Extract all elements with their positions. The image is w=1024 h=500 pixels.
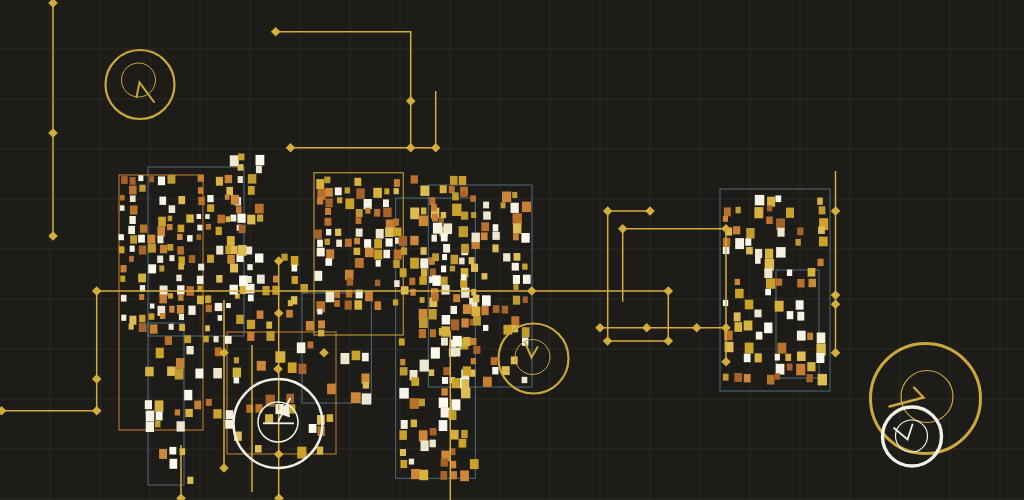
chip-square bbox=[521, 233, 529, 243]
chip-square bbox=[400, 449, 406, 456]
chip-square bbox=[523, 296, 528, 303]
chip-square bbox=[451, 430, 459, 440]
chip-square bbox=[218, 315, 223, 321]
chip-square bbox=[198, 187, 203, 194]
chip-square bbox=[482, 295, 491, 306]
chip-square bbox=[177, 246, 184, 255]
chip-square bbox=[765, 289, 771, 295]
chip-square bbox=[473, 316, 481, 326]
chip-square bbox=[130, 246, 135, 252]
chip-square bbox=[247, 332, 254, 341]
chip-square bbox=[184, 390, 192, 400]
chip-square bbox=[430, 329, 436, 337]
chip-square bbox=[205, 325, 210, 331]
chip-square bbox=[723, 374, 729, 381]
chip-square bbox=[785, 354, 791, 361]
chip-square bbox=[297, 447, 306, 459]
chip-square bbox=[185, 409, 193, 417]
chip-square bbox=[176, 358, 184, 369]
chip-square bbox=[365, 208, 370, 214]
chip-square bbox=[492, 232, 499, 240]
chip-square bbox=[130, 177, 136, 185]
chip-square bbox=[393, 299, 398, 305]
chip-square bbox=[807, 362, 815, 371]
chip-square bbox=[491, 357, 498, 365]
chip-square bbox=[409, 278, 415, 285]
chip-square bbox=[337, 197, 342, 203]
chip-square bbox=[273, 276, 279, 283]
chip-square bbox=[440, 185, 447, 193]
chip-square bbox=[429, 309, 437, 320]
chip-square bbox=[121, 315, 126, 321]
chip-square bbox=[374, 209, 380, 217]
chip-square bbox=[148, 264, 156, 273]
chip-square bbox=[430, 440, 436, 448]
chip-square bbox=[198, 175, 204, 182]
chip-square bbox=[239, 225, 246, 233]
chip-square bbox=[347, 278, 354, 285]
chip-square bbox=[176, 275, 181, 282]
chip-square bbox=[205, 214, 210, 219]
chip-square bbox=[198, 264, 204, 271]
chip-square bbox=[324, 177, 330, 184]
chip-square bbox=[129, 324, 134, 330]
chip-square bbox=[363, 382, 369, 389]
chip-square bbox=[441, 326, 450, 336]
chip-square bbox=[146, 411, 155, 422]
chip-square bbox=[238, 154, 244, 161]
chip-square bbox=[187, 477, 193, 484]
chip-square bbox=[345, 301, 352, 310]
chip-square bbox=[452, 192, 459, 200]
chip-square bbox=[194, 401, 201, 410]
chip-square bbox=[206, 305, 212, 313]
chip-square bbox=[399, 430, 407, 440]
chip-square bbox=[376, 260, 381, 267]
chip-square bbox=[451, 399, 460, 410]
art-canvas bbox=[0, 0, 1024, 500]
chip-square bbox=[139, 315, 145, 323]
chip-square bbox=[797, 228, 803, 236]
chip-square bbox=[442, 285, 450, 295]
chip-square bbox=[375, 280, 380, 287]
chip-square bbox=[400, 460, 407, 468]
chip-square bbox=[265, 414, 273, 424]
chip-square bbox=[376, 229, 384, 239]
chip-square bbox=[471, 306, 480, 316]
chip-square bbox=[473, 295, 480, 303]
chip-square bbox=[167, 367, 176, 376]
chip-square bbox=[315, 271, 323, 281]
chip-square bbox=[421, 247, 427, 255]
chip-square bbox=[511, 203, 519, 213]
chip-square bbox=[157, 236, 163, 244]
chip-square bbox=[155, 421, 161, 428]
chip-square bbox=[345, 187, 350, 193]
chip-square bbox=[238, 164, 244, 171]
chip-square bbox=[159, 265, 164, 271]
chip-square bbox=[394, 280, 399, 287]
chip-square bbox=[419, 470, 428, 481]
chip-square bbox=[149, 313, 155, 320]
chip-square bbox=[203, 336, 209, 343]
chip-square bbox=[213, 409, 221, 418]
chip-square bbox=[178, 196, 185, 204]
chip-square bbox=[327, 414, 334, 422]
chip-square bbox=[275, 351, 285, 362]
chip-square bbox=[394, 188, 399, 194]
chip-square bbox=[150, 324, 158, 333]
chip-square bbox=[513, 233, 519, 240]
chip-square bbox=[452, 378, 460, 388]
chip-square bbox=[170, 459, 178, 469]
chip-square bbox=[766, 217, 773, 225]
chip-square bbox=[374, 239, 382, 248]
chip-square bbox=[255, 445, 262, 453]
chip-square bbox=[336, 240, 342, 247]
chip-square bbox=[471, 358, 476, 364]
chip-square bbox=[400, 367, 408, 375]
chip-square bbox=[345, 239, 352, 247]
chip-square bbox=[470, 459, 479, 469]
chip-square bbox=[356, 218, 362, 224]
chip-square bbox=[745, 238, 751, 246]
chip-square bbox=[452, 204, 461, 216]
chip-square bbox=[178, 263, 184, 269]
chip-square bbox=[326, 249, 334, 259]
chip-square bbox=[471, 264, 478, 272]
chip-square bbox=[238, 245, 247, 256]
chip-square bbox=[442, 254, 447, 260]
chip-square bbox=[450, 461, 456, 469]
chip-square bbox=[461, 430, 468, 438]
chip-square bbox=[247, 215, 255, 225]
chip-square bbox=[483, 211, 491, 219]
chip-square bbox=[158, 176, 165, 185]
chip-square bbox=[216, 227, 222, 235]
chip-square bbox=[431, 347, 440, 358]
chip-square bbox=[187, 235, 193, 242]
chip-square bbox=[461, 244, 469, 254]
chip-square bbox=[230, 285, 238, 295]
chip-square bbox=[318, 330, 324, 337]
chip-square bbox=[797, 312, 804, 321]
chip-square bbox=[335, 229, 341, 236]
chip-square bbox=[236, 206, 242, 213]
chip-square bbox=[775, 354, 780, 361]
chip-square bbox=[451, 319, 459, 330]
chip-square bbox=[160, 245, 167, 253]
chip-square bbox=[158, 217, 166, 227]
chip-square bbox=[522, 377, 528, 383]
chip-square bbox=[257, 215, 263, 222]
chip-square bbox=[226, 187, 233, 196]
chip-square bbox=[451, 471, 457, 479]
chip-square bbox=[745, 343, 754, 354]
chip-square bbox=[441, 388, 447, 395]
chip-square bbox=[159, 197, 166, 205]
chip-square bbox=[308, 341, 314, 348]
chip-square bbox=[299, 364, 307, 374]
chip-square bbox=[383, 208, 392, 218]
chip-square bbox=[493, 224, 499, 231]
chip-square bbox=[157, 227, 165, 237]
chip-square bbox=[744, 354, 751, 363]
chip-square bbox=[441, 459, 448, 467]
chip-square bbox=[399, 338, 405, 345]
chip-square bbox=[817, 198, 823, 205]
chip-square bbox=[383, 199, 389, 207]
chip-square bbox=[443, 244, 450, 253]
chip-square bbox=[443, 223, 452, 234]
chip-square bbox=[306, 321, 314, 331]
chip-square bbox=[776, 279, 782, 286]
chip-square bbox=[327, 384, 336, 395]
chip-square bbox=[139, 323, 147, 332]
chip-square bbox=[461, 288, 469, 298]
chip-square bbox=[809, 279, 817, 288]
chip-square bbox=[148, 235, 156, 244]
chip-square bbox=[169, 447, 176, 455]
chip-square bbox=[411, 469, 420, 479]
chip-square bbox=[128, 226, 135, 234]
chip-square bbox=[165, 336, 172, 345]
chip-square bbox=[440, 471, 447, 480]
chip-square bbox=[463, 337, 470, 346]
chip-square bbox=[777, 228, 784, 237]
chip-square bbox=[819, 206, 826, 214]
chip-square bbox=[734, 373, 742, 382]
chip-square bbox=[155, 400, 164, 411]
chip-square bbox=[255, 254, 263, 263]
chip-square bbox=[121, 176, 128, 184]
chip-square bbox=[365, 291, 373, 301]
chip-square bbox=[315, 230, 322, 239]
chip-square bbox=[419, 399, 425, 407]
chip-square bbox=[129, 216, 135, 224]
chip-square bbox=[356, 188, 365, 198]
chip-square bbox=[215, 303, 223, 311]
chip-square bbox=[178, 225, 185, 233]
chip-square bbox=[787, 364, 793, 371]
chip-square bbox=[419, 430, 428, 441]
chip-square bbox=[432, 253, 439, 261]
chip-square bbox=[787, 270, 792, 277]
chip-square bbox=[384, 188, 389, 194]
chip-square bbox=[325, 198, 332, 207]
chip-square bbox=[352, 351, 361, 361]
chip-square bbox=[735, 279, 740, 285]
chip-square bbox=[373, 188, 382, 198]
chip-square bbox=[334, 300, 340, 307]
chip-square bbox=[356, 229, 363, 237]
chip-square bbox=[256, 155, 265, 165]
chip-square bbox=[247, 264, 252, 270]
chip-square bbox=[139, 294, 144, 300]
chip-square bbox=[471, 338, 477, 345]
chip-square bbox=[297, 342, 306, 353]
chip-square bbox=[493, 305, 500, 313]
chip-square bbox=[459, 258, 465, 265]
chip-square bbox=[160, 313, 165, 319]
chip-square bbox=[233, 368, 241, 378]
chip-square bbox=[439, 398, 448, 408]
chip-square bbox=[513, 284, 518, 290]
generative-artwork bbox=[0, 0, 1024, 500]
chip-square bbox=[317, 240, 323, 247]
chip-square bbox=[292, 276, 298, 284]
chip-square bbox=[207, 204, 214, 212]
chip-square bbox=[442, 315, 450, 325]
chip-square bbox=[400, 268, 407, 277]
chip-square bbox=[450, 176, 458, 185]
chip-square bbox=[459, 226, 468, 237]
chip-square bbox=[168, 293, 173, 298]
chip-square bbox=[512, 263, 519, 271]
chip-square bbox=[430, 428, 437, 436]
chip-square bbox=[733, 226, 740, 234]
chip-square bbox=[775, 301, 784, 312]
chip-square bbox=[175, 369, 184, 380]
chip-square bbox=[421, 208, 426, 215]
chip-square bbox=[129, 186, 137, 195]
chip-square bbox=[309, 424, 317, 433]
chip-square bbox=[469, 257, 475, 264]
chip-square bbox=[157, 256, 163, 263]
chip-square bbox=[492, 367, 498, 374]
chip-square bbox=[433, 223, 442, 234]
chip-square bbox=[248, 186, 255, 195]
chip-square bbox=[354, 178, 361, 186]
chip-square bbox=[441, 408, 450, 418]
chip-square bbox=[169, 324, 174, 330]
chip-square bbox=[226, 216, 231, 222]
chip-square bbox=[401, 420, 408, 429]
chip-square bbox=[514, 253, 521, 261]
chip-square bbox=[197, 214, 202, 219]
chip-square bbox=[409, 459, 414, 465]
chip-square bbox=[325, 258, 332, 266]
chip-square bbox=[410, 208, 419, 220]
chip-square bbox=[230, 264, 238, 273]
chip-square bbox=[130, 206, 138, 215]
chip-square bbox=[441, 338, 448, 346]
chip-square bbox=[441, 212, 447, 218]
chip-square bbox=[786, 208, 794, 218]
chip-square bbox=[383, 250, 390, 258]
chip-square bbox=[266, 331, 274, 341]
chip-square bbox=[386, 238, 393, 246]
chip-square bbox=[362, 353, 369, 362]
chip-square bbox=[796, 364, 805, 376]
chip-square bbox=[230, 215, 236, 222]
chip-square bbox=[430, 268, 436, 276]
chip-square bbox=[472, 233, 480, 243]
chip-square bbox=[818, 226, 825, 234]
chip-square bbox=[410, 289, 415, 296]
chip-square bbox=[326, 291, 335, 302]
chip-square bbox=[177, 305, 184, 314]
chip-square bbox=[120, 205, 125, 211]
chip-square bbox=[216, 275, 222, 283]
chip-square bbox=[471, 212, 476, 218]
chip-square bbox=[461, 318, 468, 327]
chip-square bbox=[237, 214, 245, 223]
chip-square bbox=[179, 314, 184, 320]
chip-square bbox=[145, 367, 154, 377]
chip-square bbox=[167, 244, 173, 251]
chip-square bbox=[470, 195, 476, 202]
chip-square bbox=[775, 195, 781, 202]
chip-square bbox=[145, 400, 152, 409]
chip-square bbox=[787, 311, 794, 319]
chip-square bbox=[234, 357, 239, 363]
chip-square bbox=[734, 312, 741, 321]
chip-square bbox=[325, 239, 330, 245]
chip-square bbox=[292, 265, 298, 272]
chip-square bbox=[375, 301, 382, 310]
chip-square bbox=[410, 398, 419, 409]
chip-square bbox=[744, 374, 751, 382]
chip-square bbox=[399, 388, 409, 399]
chip-square bbox=[214, 336, 219, 342]
chip-square bbox=[354, 238, 360, 245]
chip-square bbox=[231, 246, 237, 254]
chip-square bbox=[421, 269, 427, 277]
chip-square bbox=[453, 336, 462, 347]
chip-square bbox=[523, 275, 531, 284]
chip-square bbox=[146, 422, 154, 433]
chip-square bbox=[286, 310, 293, 318]
chip-square bbox=[288, 362, 297, 373]
chip-square bbox=[184, 335, 191, 343]
chip-square bbox=[432, 294, 439, 301]
chip-square bbox=[257, 361, 266, 371]
chip-square bbox=[177, 234, 183, 240]
chip-square bbox=[501, 202, 506, 208]
chip-square bbox=[724, 207, 731, 216]
chip-square bbox=[225, 336, 232, 344]
chip-square bbox=[419, 276, 427, 285]
chip-square bbox=[481, 222, 489, 231]
chip-square bbox=[432, 214, 438, 222]
chip-square bbox=[248, 295, 254, 302]
chip-square bbox=[513, 213, 522, 225]
chip-square bbox=[169, 255, 174, 261]
chip-square bbox=[443, 367, 450, 375]
chip-square bbox=[401, 247, 407, 255]
chip-square bbox=[461, 191, 467, 197]
chip-square bbox=[318, 320, 325, 328]
chip-square bbox=[356, 209, 363, 217]
chip-square bbox=[411, 377, 419, 386]
chip-square bbox=[482, 273, 488, 279]
chip-square bbox=[481, 232, 488, 240]
chip-square bbox=[227, 255, 235, 264]
chip-square bbox=[255, 204, 264, 214]
chip-square bbox=[364, 239, 371, 248]
chip-square bbox=[513, 275, 520, 284]
chip-square bbox=[129, 316, 136, 325]
chip-square bbox=[355, 258, 364, 268]
chip-square bbox=[225, 175, 232, 183]
chip-square bbox=[432, 275, 440, 286]
chip-square bbox=[138, 274, 146, 283]
chip-square bbox=[745, 300, 754, 310]
chip-square bbox=[421, 441, 429, 452]
chip-square bbox=[764, 269, 772, 278]
chip-square bbox=[240, 286, 246, 294]
